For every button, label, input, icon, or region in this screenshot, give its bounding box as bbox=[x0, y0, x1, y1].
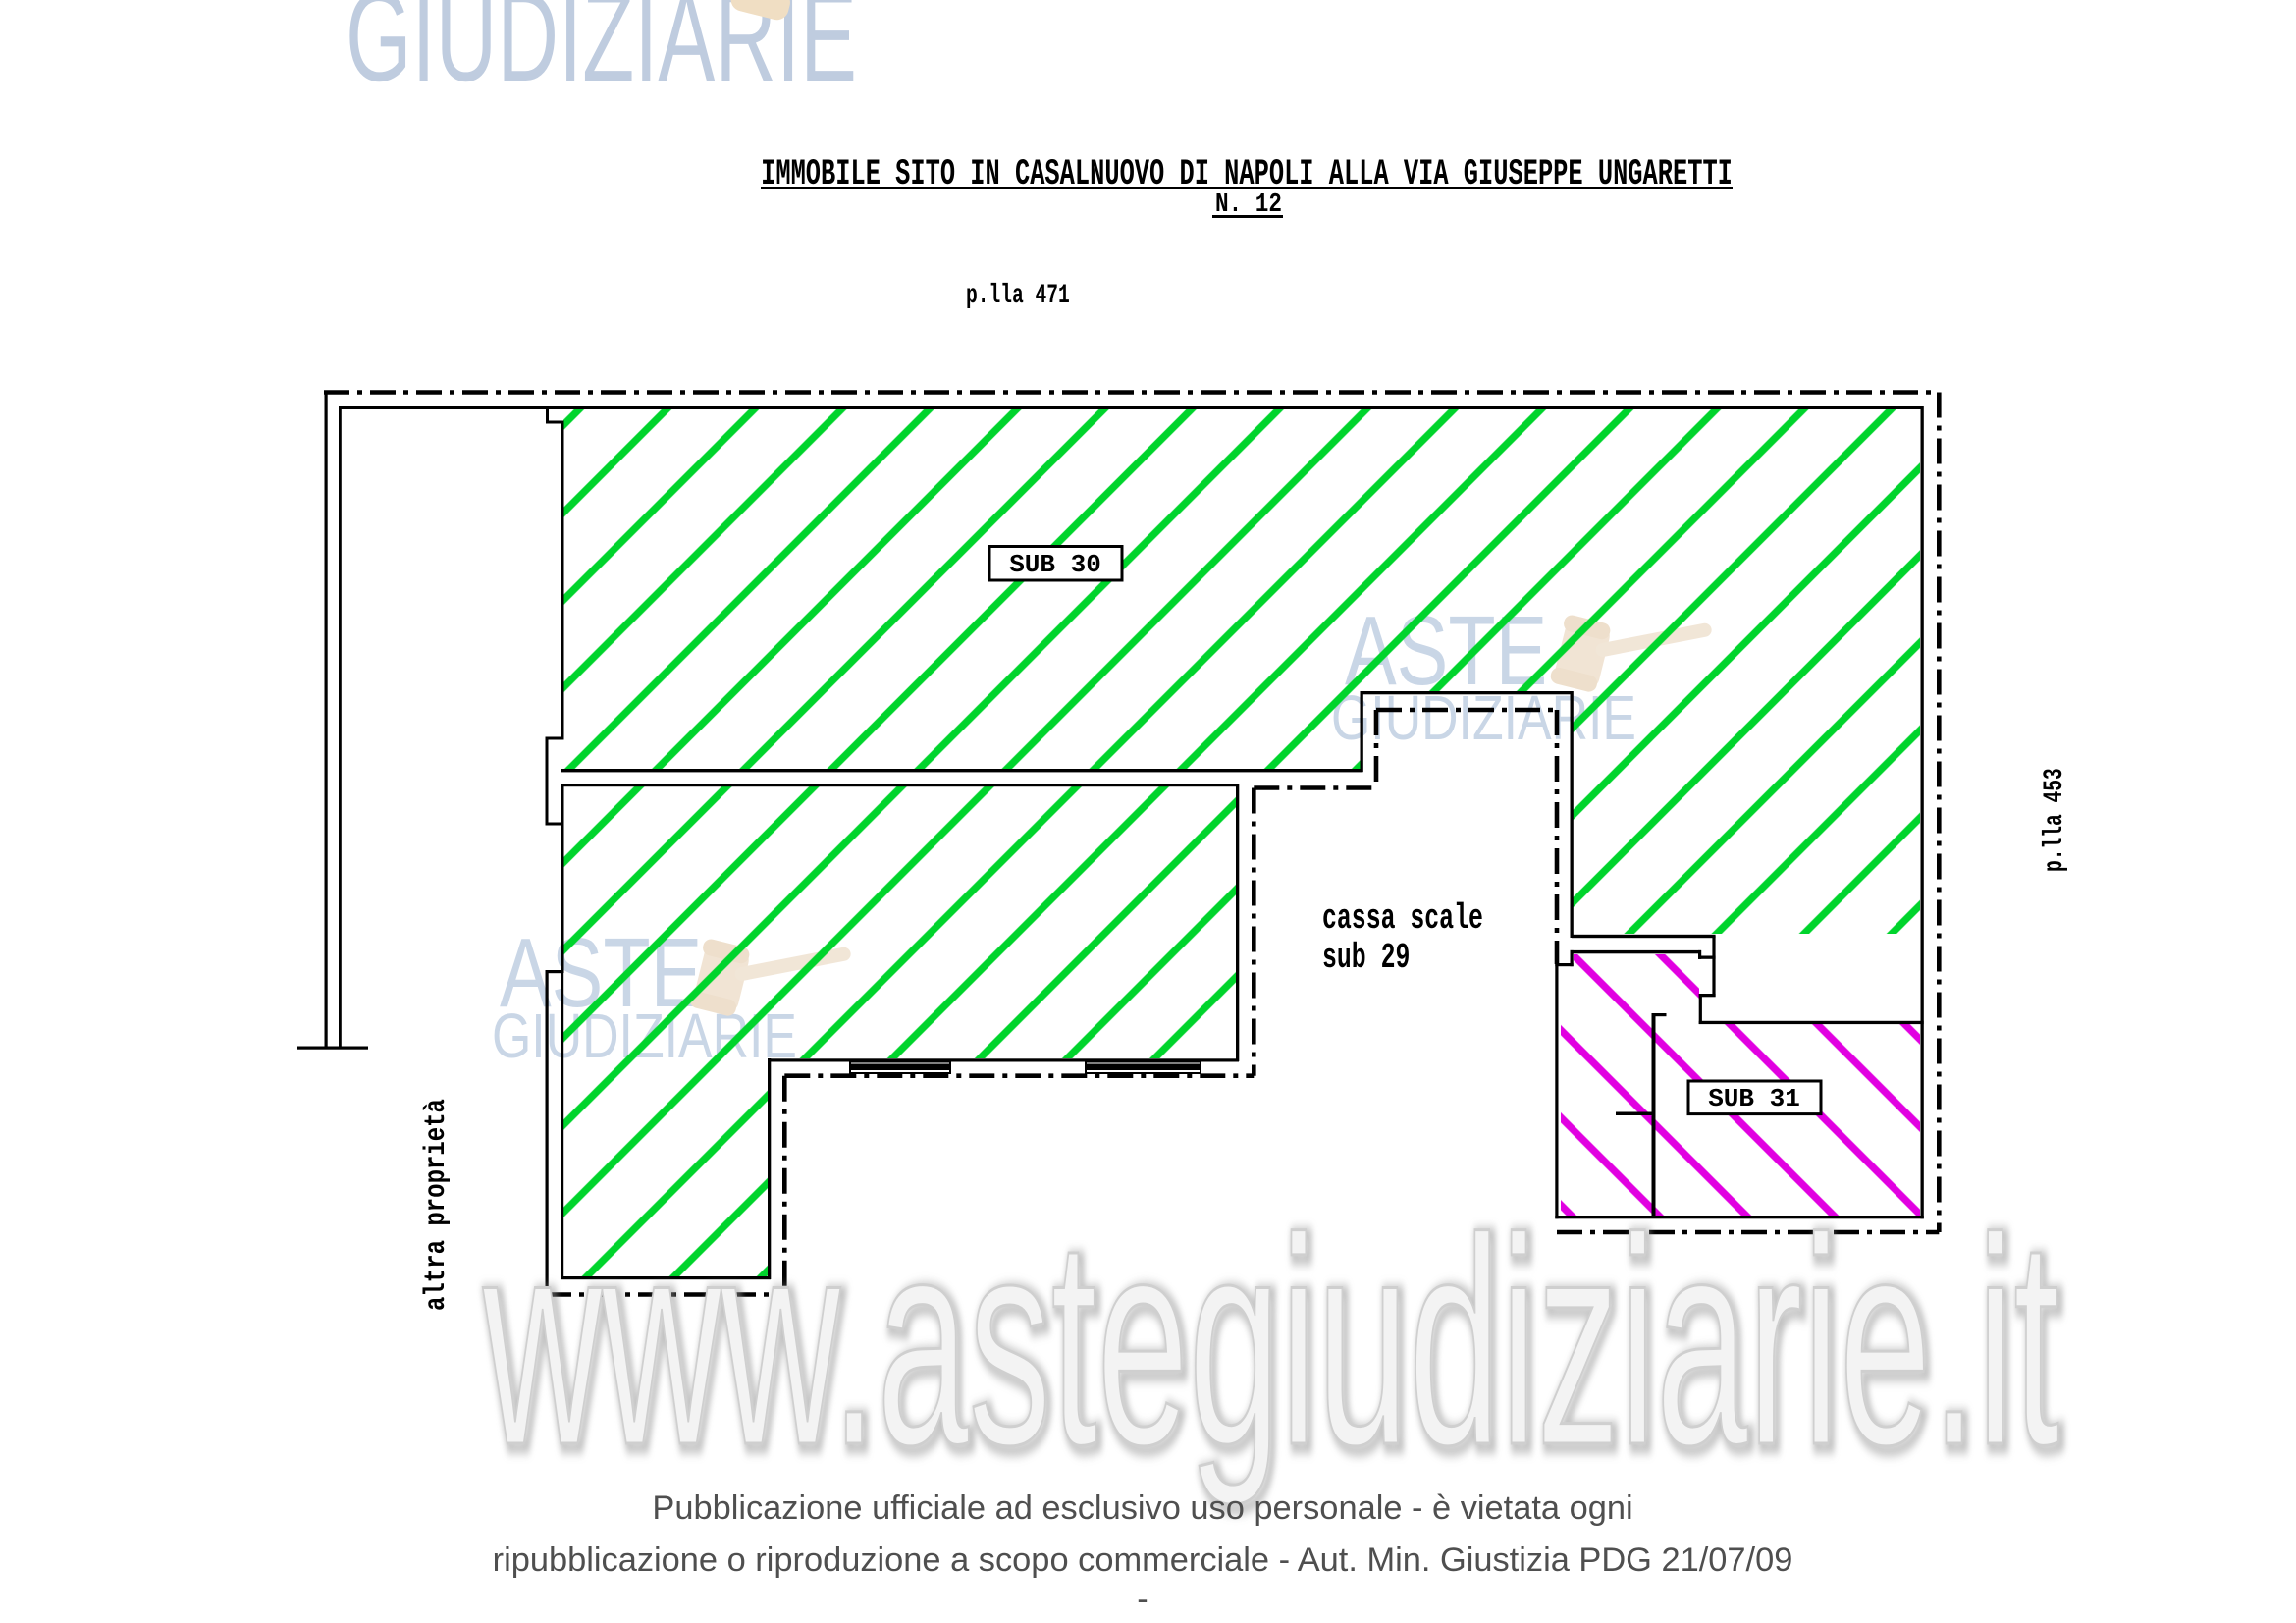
svg-text:Pubblicazione ufficiale ad esc: Pubblicazione ufficiale ad esclusivo uso… bbox=[652, 1489, 1632, 1527]
svg-text:p.lla 453: p.lla 453 bbox=[2040, 768, 2070, 872]
svg-text:p.lla 471: p.lla 471 bbox=[966, 281, 1070, 311]
svg-text:altra proprietà: altra proprietà bbox=[420, 1099, 454, 1311]
svg-text:SUB 31: SUB 31 bbox=[1708, 1084, 1800, 1113]
svg-text:SUB 30: SUB 30 bbox=[1009, 550, 1101, 579]
svg-text:sub 29: sub 29 bbox=[1322, 939, 1410, 979]
svg-text:ripubblicazione o riproduzione: ripubblicazione o riproduzione a scopo c… bbox=[493, 1542, 1793, 1579]
svg-text:www.astegiudiziarie.it: www.astegiudiziarie.it bbox=[482, 1177, 2059, 1507]
svg-text:cassa scale: cassa scale bbox=[1322, 899, 1483, 940]
svg-text:-: - bbox=[1137, 1581, 1148, 1618]
